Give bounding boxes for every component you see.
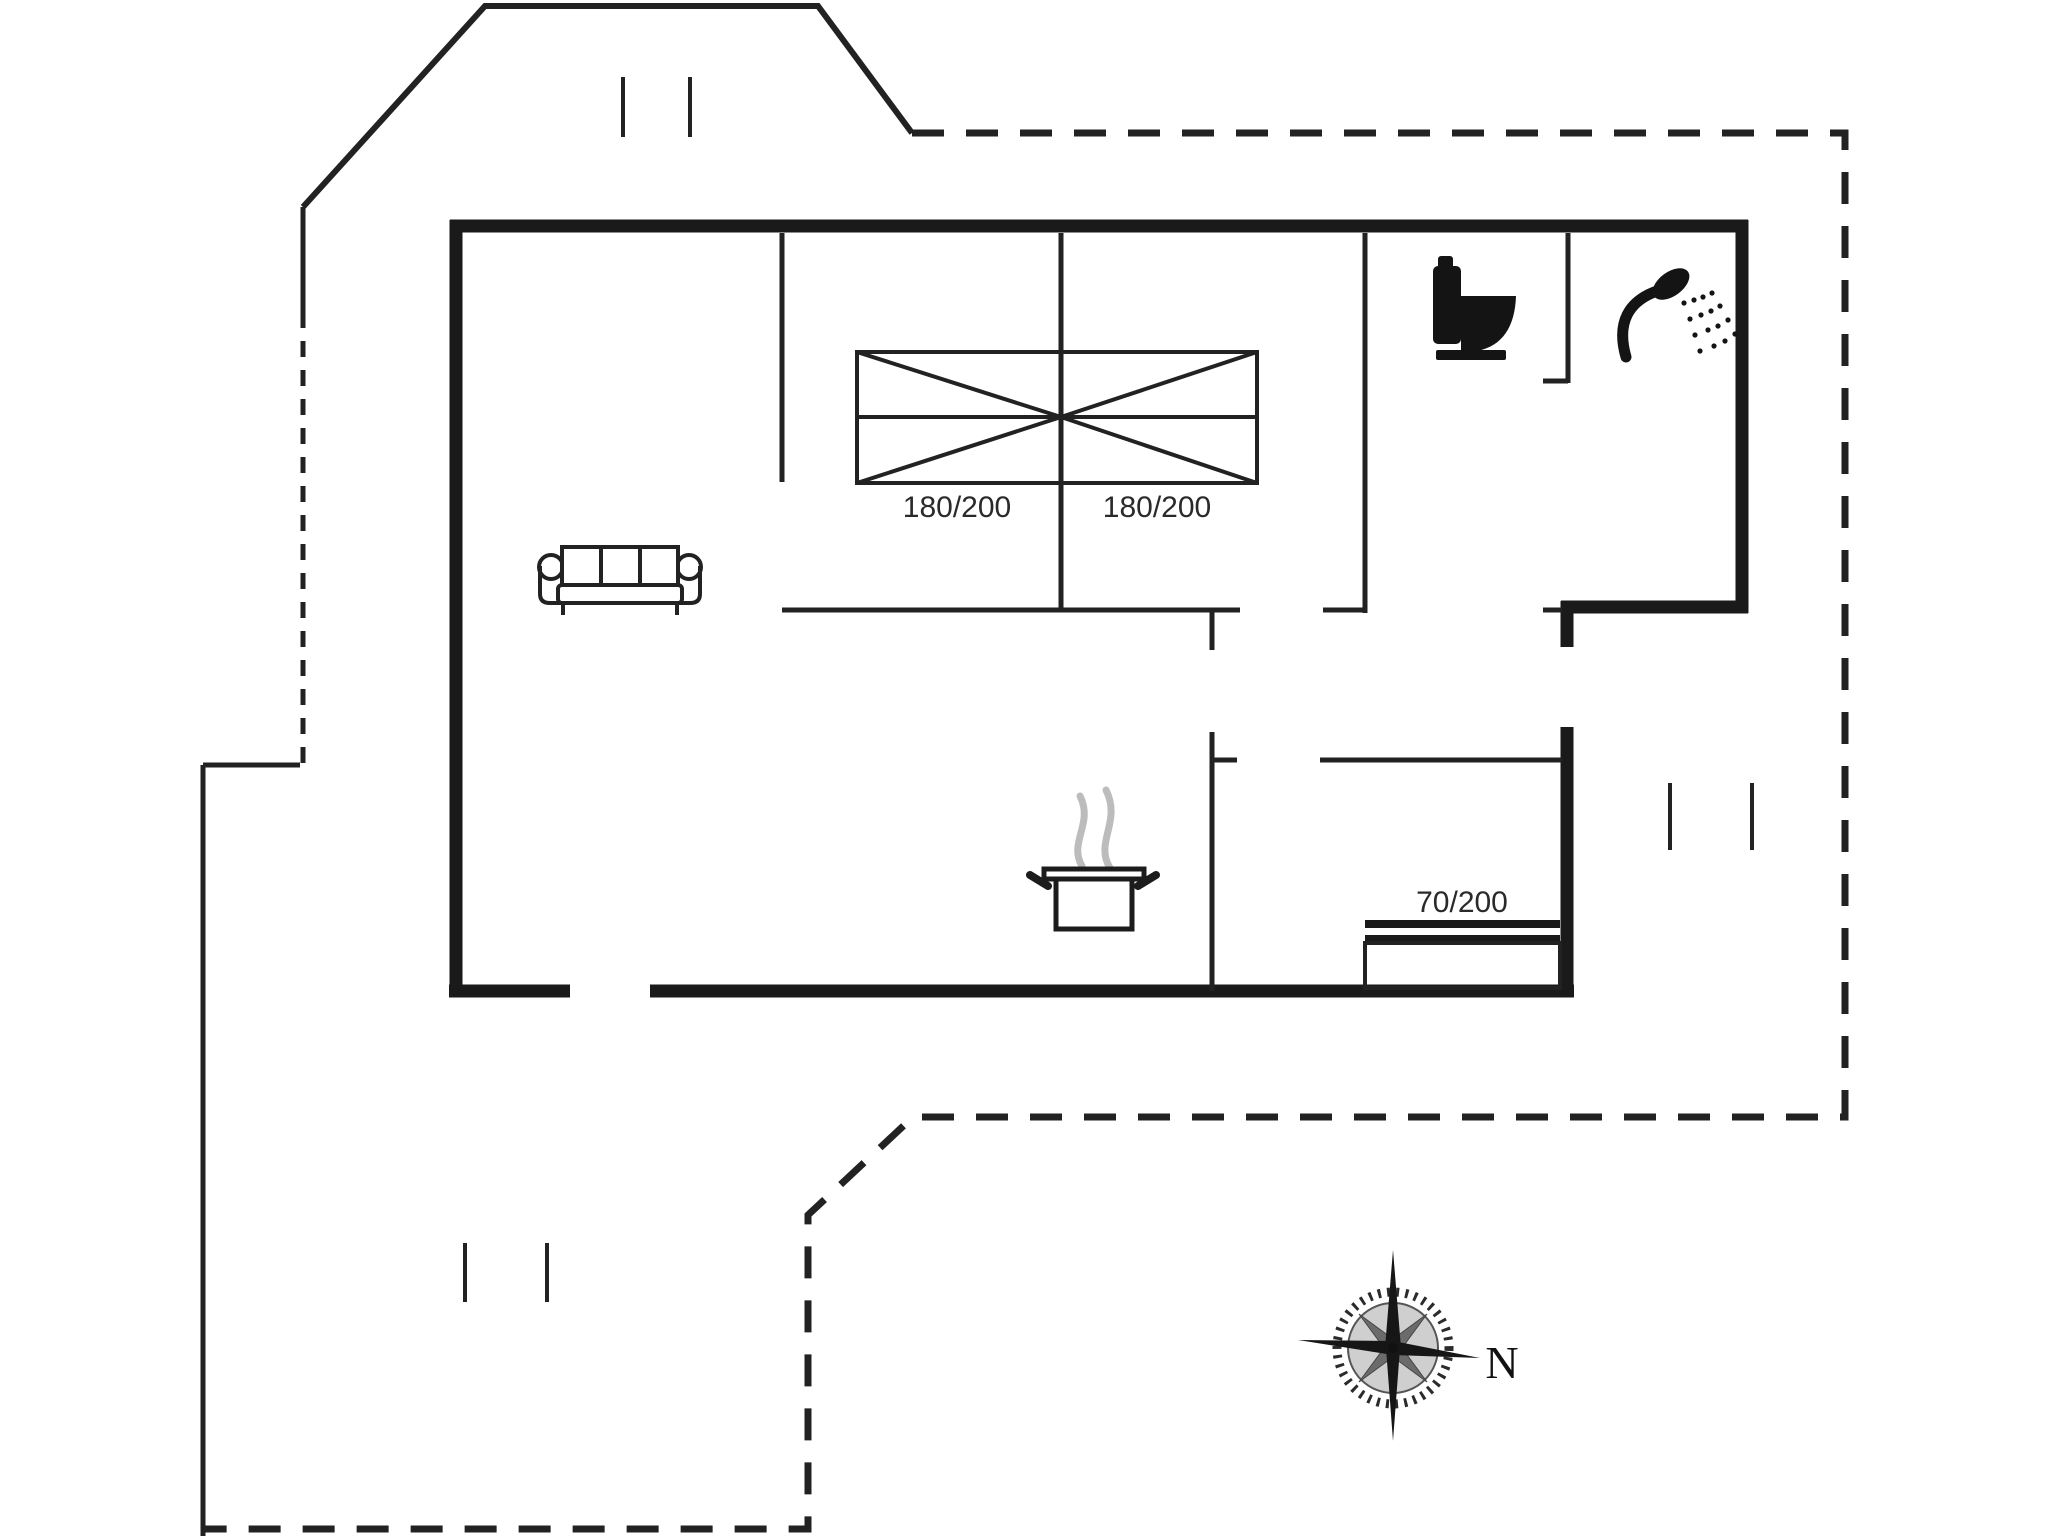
steam-icon [1078,790,1111,868]
double-beds: 180/200 180/200 [857,352,1257,524]
cooking-pot-icon [1030,790,1156,929]
roof-outline [303,6,912,207]
floor-plan-canvas: 180/200 180/200 70/200 [0,0,2048,1536]
bed-size-label: 180/200 [1103,491,1211,524]
shower-spray-dots [1681,290,1737,353]
toilet-icon [1433,256,1516,360]
sofa-icon [539,547,701,615]
bunk-size-label: 70/200 [1416,886,1508,919]
north-label: N [1485,1337,1518,1388]
floor-plan-page: 180/200 180/200 70/200 [0,0,2048,1536]
bunk-bed-icon [1365,924,1560,988]
bed-size-label: 180/200 [903,491,1011,524]
shower-head-icon [1623,262,1738,357]
plot-boundary [203,133,1845,1536]
double-bed-icon [857,352,1257,483]
interior-walls [782,233,1568,991]
compass-rose-icon: N [1298,1250,1519,1441]
